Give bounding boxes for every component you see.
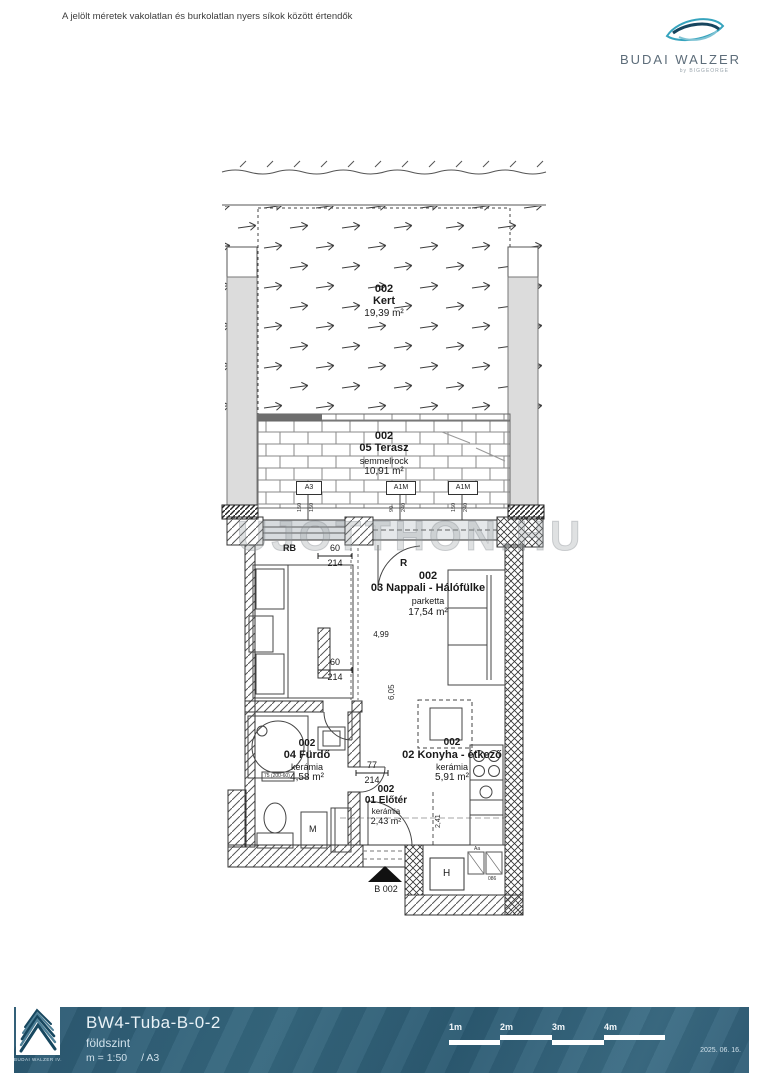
shaft-tag: H <box>443 868 450 879</box>
kert-area: 19,39 m² <box>364 308 403 319</box>
date-label: 2025. 06. 16. <box>700 1047 741 1054</box>
nappali-name: 03 Nappali - Hálófülke <box>371 582 485 594</box>
scalebar-segment-4 <box>604 1035 665 1040</box>
svg-text:150: 150 <box>451 503 457 512</box>
kert-name: Kert <box>373 295 395 307</box>
left-boundary-wall <box>222 247 258 519</box>
footer-logo-icon <box>16 1005 60 1055</box>
scalebar-segment-1 <box>449 1040 500 1045</box>
nappali-area: 17,54 m² <box>408 607 447 618</box>
terasz-code: 002 <box>375 430 393 442</box>
footer-logo-caption: BUDAI WALZER IV. <box>14 1057 62 1062</box>
entrance-arrow <box>368 866 402 882</box>
appliance-label-2: 086 <box>488 876 496 882</box>
dim-door-width: 77 <box>367 760 377 770</box>
svg-text:2,41: 2,41 <box>435 814 442 828</box>
entrance <box>363 845 405 882</box>
scalebar-label-1m: 1m <box>449 1022 462 1032</box>
floor-label: földszint <box>86 1036 130 1050</box>
svg-text:240: 240 <box>463 503 469 512</box>
furdo-area: 4,58 m² <box>290 772 324 783</box>
furdo-material: kerámia <box>291 762 323 772</box>
appliance-label-1: Aa <box>474 846 480 852</box>
scale-value: m = 1:50 <box>86 1052 127 1064</box>
konyha-material: kerámia <box>436 762 468 772</box>
shaft-room <box>423 845 505 895</box>
svg-text:6,05: 6,05 <box>387 684 396 700</box>
konyha-area: 5,91 m² <box>435 772 469 783</box>
scalebar-label-4m: 4m <box>604 1022 617 1032</box>
window-tag-a1m-1: A1M <box>386 481 416 495</box>
scalebar-label-2m: 2m <box>500 1022 513 1032</box>
roller-blind-tag: RB <box>283 543 296 553</box>
nappali-material: parketta <box>412 596 445 606</box>
scalebar-segment-2 <box>500 1035 552 1040</box>
dim-door-height: 214 <box>364 775 379 785</box>
window-tag-a1m-2: A1M <box>448 481 478 495</box>
unit-code: BW4-Tuba-B-0-2 <box>86 1013 221 1033</box>
svg-text:150: 150 <box>309 503 315 512</box>
brand-byline: by BIGGEORGE <box>680 68 729 74</box>
terasz-name: 05 Terasz <box>359 442 408 454</box>
nappali-code: 002 <box>419 570 437 582</box>
eloter-name: 01 Előtér <box>365 795 407 806</box>
scale-label: m = 1:50/ A3 <box>86 1052 159 1064</box>
eloter-area: 2,43 m² <box>371 816 402 826</box>
disclaimer-note: A jelölt méretek vakolatlan és burkolatl… <box>62 11 352 22</box>
dim-win2-height: 214 <box>327 672 342 682</box>
dim-win1-width: 60 <box>330 543 340 553</box>
footer-logo-box <box>16 1005 60 1055</box>
terasz-material: semmelrock <box>360 456 409 466</box>
entry-tag: B 002 <box>374 884 398 894</box>
furdo-code: 002 <box>299 738 316 749</box>
scalebar-label-3m: 3m <box>552 1022 565 1032</box>
svg-text:150: 150 <box>297 503 303 512</box>
site-boundary <box>222 161 546 205</box>
konyha-code: 002 <box>444 737 461 748</box>
dim-win2-width: 60 <box>330 657 340 667</box>
dim-win1-height: 214 <box>327 558 342 568</box>
window-tag-a3: A3 <box>296 481 322 495</box>
brand-wave-icon <box>659 8 735 52</box>
sheet-size: / A3 <box>141 1052 159 1064</box>
floorplan-page: { "page": { "disclaimer": "A jelölt mére… <box>0 0 763 1080</box>
kert-code: 002 <box>375 283 393 295</box>
eloter-code: 002 <box>378 784 395 795</box>
bathroom-fixtures <box>248 716 351 852</box>
svg-text:240: 240 <box>401 503 407 512</box>
dim-room-length: 4,99 <box>373 630 389 639</box>
bath-note: 75 (200-60) <box>264 773 290 779</box>
radiator-tag: R <box>400 558 407 569</box>
title-block-bar: BUDAI WALZER IV. BW4-Tuba-B-0-2 földszin… <box>14 1007 749 1073</box>
eloter-material: kerámia <box>372 807 400 816</box>
brand-name: BUDAI WALZER <box>620 52 741 67</box>
washer-tag: M <box>309 824 317 834</box>
konyha-name: 02 Konyha - étkező <box>402 749 502 761</box>
terasz-area: 10,91 m² <box>364 466 403 477</box>
scalebar-segment-3 <box>552 1040 604 1045</box>
furdo-name: 04 Fürdő <box>284 749 330 761</box>
